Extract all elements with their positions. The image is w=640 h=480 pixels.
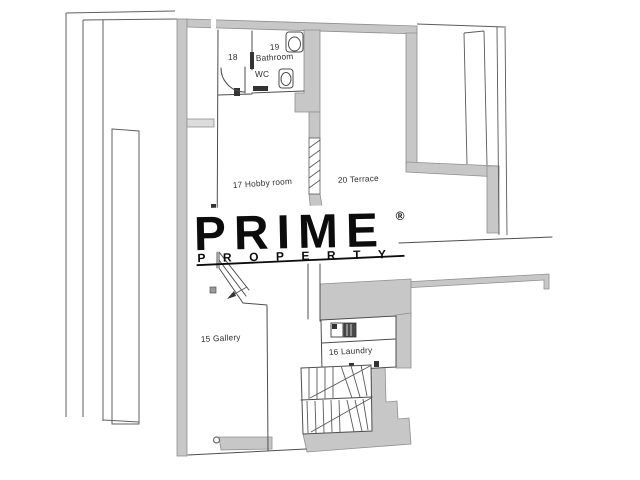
north-wall <box>187 19 417 34</box>
toilet-icon <box>286 32 303 52</box>
hobby-east-wall-upper <box>309 112 320 138</box>
terrace-east-wall <box>487 166 499 233</box>
prime-property-watermark: PRIME ® PROPERTY <box>191 204 405 265</box>
door-jamb-18 <box>234 88 240 96</box>
wc-label: WC <box>255 69 269 79</box>
roof-edge-band <box>404 274 549 289</box>
laundry-room <box>321 316 396 371</box>
bathroom-threshold <box>253 86 268 91</box>
wall-end-hook <box>214 437 220 443</box>
floor-plan-drawing: 18 19 Bathroom WC 17 Hobby room 20 Terra… <box>0 0 640 480</box>
door-jamb-19 <box>250 52 254 69</box>
terrace-label: 20 Terrace <box>338 173 380 185</box>
hobby-room-label: 17 Hobby room <box>232 176 292 190</box>
gallery-south-wall <box>219 437 272 450</box>
north-wall-opening <box>211 19 216 29</box>
stair-marker <box>210 287 216 293</box>
stair-direction-arrow <box>227 291 236 299</box>
laundry-door-jamb-2 <box>374 361 379 367</box>
site-boundary <box>66 11 177 424</box>
bidet-icon <box>279 69 293 88</box>
dryer-icon <box>344 323 356 337</box>
main-staircase <box>301 365 372 434</box>
gallery-label: 15 Gallery <box>201 332 242 344</box>
floor-plan-page: 18 19 Bathroom WC 17 Hobby room 20 Terra… <box>0 0 640 480</box>
washing-machine-icon <box>331 323 343 337</box>
bathroom-number-label: 19 <box>270 41 280 51</box>
door-arc-room18 <box>221 67 245 93</box>
hatched-window <box>309 138 320 194</box>
terrace-south-wall <box>406 162 499 177</box>
brand-subtitle: PROPERTY <box>197 247 403 265</box>
wall-stub <box>187 119 214 127</box>
west-wall <box>177 19 187 456</box>
laundry-east-wall <box>396 313 411 368</box>
room18-label: 18 <box>228 52 238 62</box>
bathroom-name-label: Bathroom <box>256 51 294 63</box>
terrace-divider-wall <box>406 33 417 165</box>
registered-trademark-symbol: ® <box>395 209 404 223</box>
